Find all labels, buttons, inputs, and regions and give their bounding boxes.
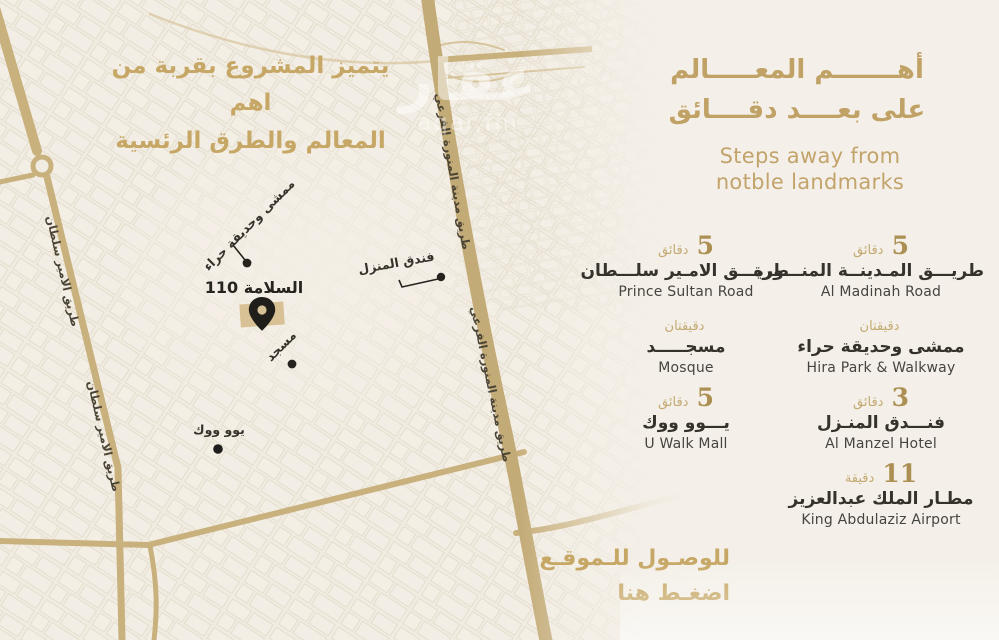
cta-reach-location[interactable]: للوصـول للـموقـع اضغـط هنا [528, 541, 730, 611]
panel-subtitle-line2: notble landmarks [660, 170, 960, 196]
landmark-name-en: U Walk Mall [583, 435, 789, 454]
poi-project-label: السلامة 110 [205, 278, 304, 297]
poi-uwalk-dot [213, 444, 223, 454]
landmark-time: 5 دقائق [583, 385, 789, 411]
time-unit: دقائق [658, 243, 688, 258]
landmark-name-ar: مسجـــــد [583, 335, 789, 359]
landmark-time: 5 دقائق [778, 233, 984, 259]
panel-title-arabic: أهـــــــم المعـــــالم على بعــــد دقــ… [612, 50, 982, 131]
panel-title-ar-line1: أهـــــــم المعـــــالم [612, 50, 982, 90]
landmark-name-en: Al Manzel Hotel [778, 435, 984, 454]
intro-text: يتميز المشروع بقربة من اهم المعالم والطر… [108, 48, 393, 160]
roundabout [33, 157, 51, 175]
landmark-name-en: Hira Park & Walkway [778, 359, 984, 378]
landmark-time: 5 دقائق [583, 233, 789, 259]
landmark-name-ar: يـــوو ووك [583, 411, 789, 435]
time-value: 3 [892, 383, 909, 412]
time-value: 5 [697, 231, 714, 260]
landmark-card-manzel-hotel: 3 دقائق فنـــدق المنـزل Al Manzel Hotel [778, 385, 984, 461]
landmark-time: دقيقتان [583, 309, 789, 335]
cta-line1: للوصـول للـموقـع [528, 541, 730, 576]
time-unit: دقيقة [845, 471, 874, 486]
landmark-name-en: Mosque [583, 359, 789, 378]
landmark-name-ar: مطـار الملك عبدالعزيز [778, 487, 984, 511]
landmark-card-uwalk: 5 دقائق يـــوو ووك U Walk Mall [583, 385, 789, 461]
landmark-column-right: 5 دقائق طريـــق المـدينــة المنـــورة Al… [778, 233, 984, 537]
time-value: 5 [697, 383, 714, 412]
poi-uwalk-label: يوو ووك [193, 422, 245, 437]
time-unit: دقيقتان [665, 319, 705, 334]
cta-line2[interactable]: اضغـط هنا [528, 576, 730, 611]
time-value: 5 [892, 231, 909, 260]
watermark: عقار aqar.fm [397, 46, 537, 136]
landmark-card-airport: 11 دقيقة مطـار الملك عبدالعزيز King Abdu… [778, 461, 984, 537]
intro-line2: المعالم والطرق الرئسية [108, 123, 393, 160]
landmark-name-ar: فنـــدق المنـزل [778, 411, 984, 435]
landmark-card-madinah-road: 5 دقائق طريـــق المـدينــة المنـــورة Al… [778, 233, 984, 309]
location-pin-hole [257, 305, 266, 314]
landmark-name-ar: طريـــق المـدينــة المنـــورة [778, 259, 984, 283]
time-unit: دقيقتان [860, 319, 900, 334]
poster: طريق الامير سلطان طريق الامير سلطان طريق… [0, 0, 999, 640]
landmark-time: 11 دقيقة [778, 461, 984, 487]
time-value: 11 [882, 459, 917, 488]
time-unit: دقائق [853, 395, 883, 410]
time-unit: دقائق [658, 395, 688, 410]
landmark-time: دقيقتان [778, 309, 984, 335]
poi-hira-dot [243, 259, 252, 268]
landmark-name-en: Al Madinah Road [778, 283, 984, 302]
landmark-card-hira-park: دقيقتان ممشى وحديقة حراء Hira Park & Wal… [778, 309, 984, 385]
watermark-arabic: عقار [397, 46, 537, 114]
landmark-name-en: King Abdulaziz Airport [778, 511, 984, 530]
landmark-time: 3 دقائق [778, 385, 984, 411]
intro-line1: يتميز المشروع بقربة من اهم [108, 48, 393, 123]
landmark-card-mosque: دقيقتان مسجـــــد Mosque [583, 309, 789, 385]
panel-subtitle-line1: Steps away from [660, 144, 960, 170]
panel-subtitle-english: Steps away from notble landmarks [660, 144, 960, 195]
panel-title-ar-line2: على بعــــد دقــــائق [612, 90, 982, 130]
landmark-name-en: Prince Sultan Road [583, 283, 789, 302]
poi-hotel-dot [437, 273, 445, 281]
watermark-latin: aqar.fm [417, 110, 519, 136]
landmark-name-ar: ممشى وحديقة حراء [778, 335, 984, 359]
poi-mosque-dot [288, 360, 297, 369]
time-unit: دقائق [853, 243, 883, 258]
